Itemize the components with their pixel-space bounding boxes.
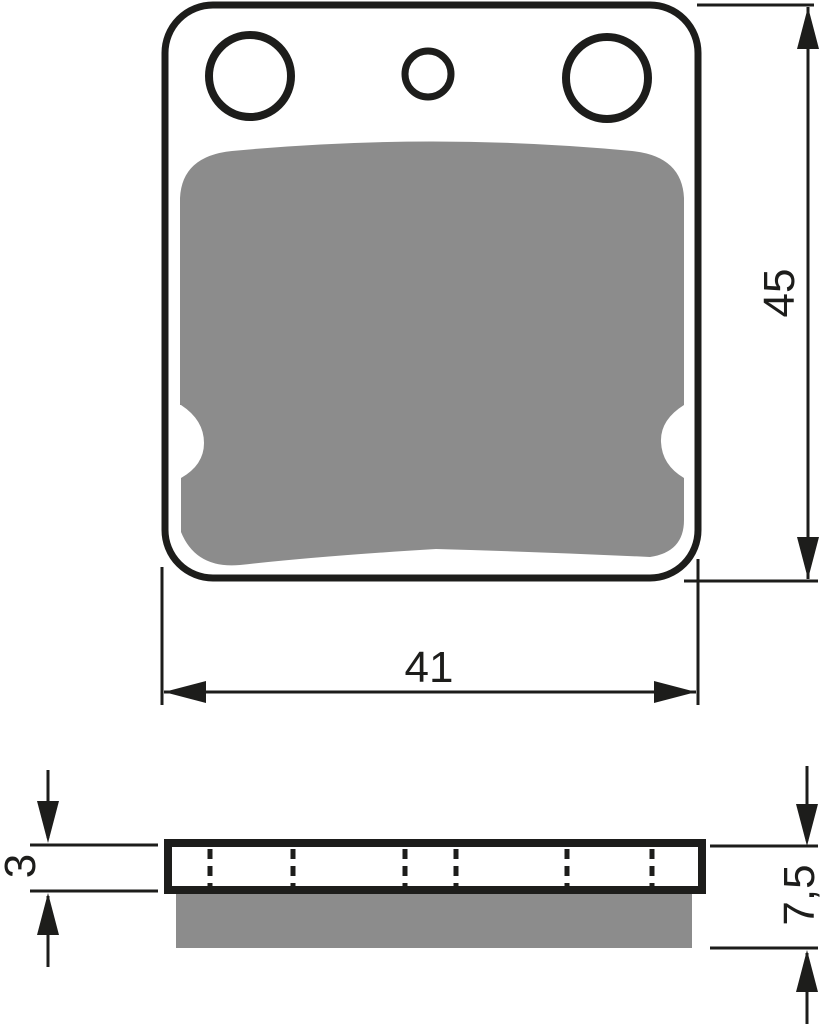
brake-pad-technical-drawing: 41 45 3 7,5 xyxy=(0,0,823,1024)
plate-thickness-label: 3 xyxy=(0,854,45,878)
total-thickness-label: 7,5 xyxy=(775,864,823,925)
backplate-outline xyxy=(165,5,698,578)
arrow-total-up xyxy=(796,950,818,992)
height-dimension-label: 45 xyxy=(755,269,804,318)
arrow-width-right xyxy=(654,681,696,703)
drawing-svg: 41 45 3 7,5 xyxy=(0,0,823,1024)
side-view-linework xyxy=(168,843,702,890)
arrow-total-down xyxy=(796,804,818,846)
arrow-width-left xyxy=(164,681,206,703)
arrow-plate-up xyxy=(37,893,59,935)
front-view-linework xyxy=(165,5,698,578)
arrow-plate-down xyxy=(37,801,59,843)
width-dimension-label: 41 xyxy=(405,643,454,692)
friction-material-side xyxy=(176,892,692,948)
arrow-height-down xyxy=(797,537,819,579)
backing-plate-side xyxy=(168,843,702,890)
arrow-height-up xyxy=(797,7,819,49)
plate-thickness-dimension-lines xyxy=(30,770,158,967)
